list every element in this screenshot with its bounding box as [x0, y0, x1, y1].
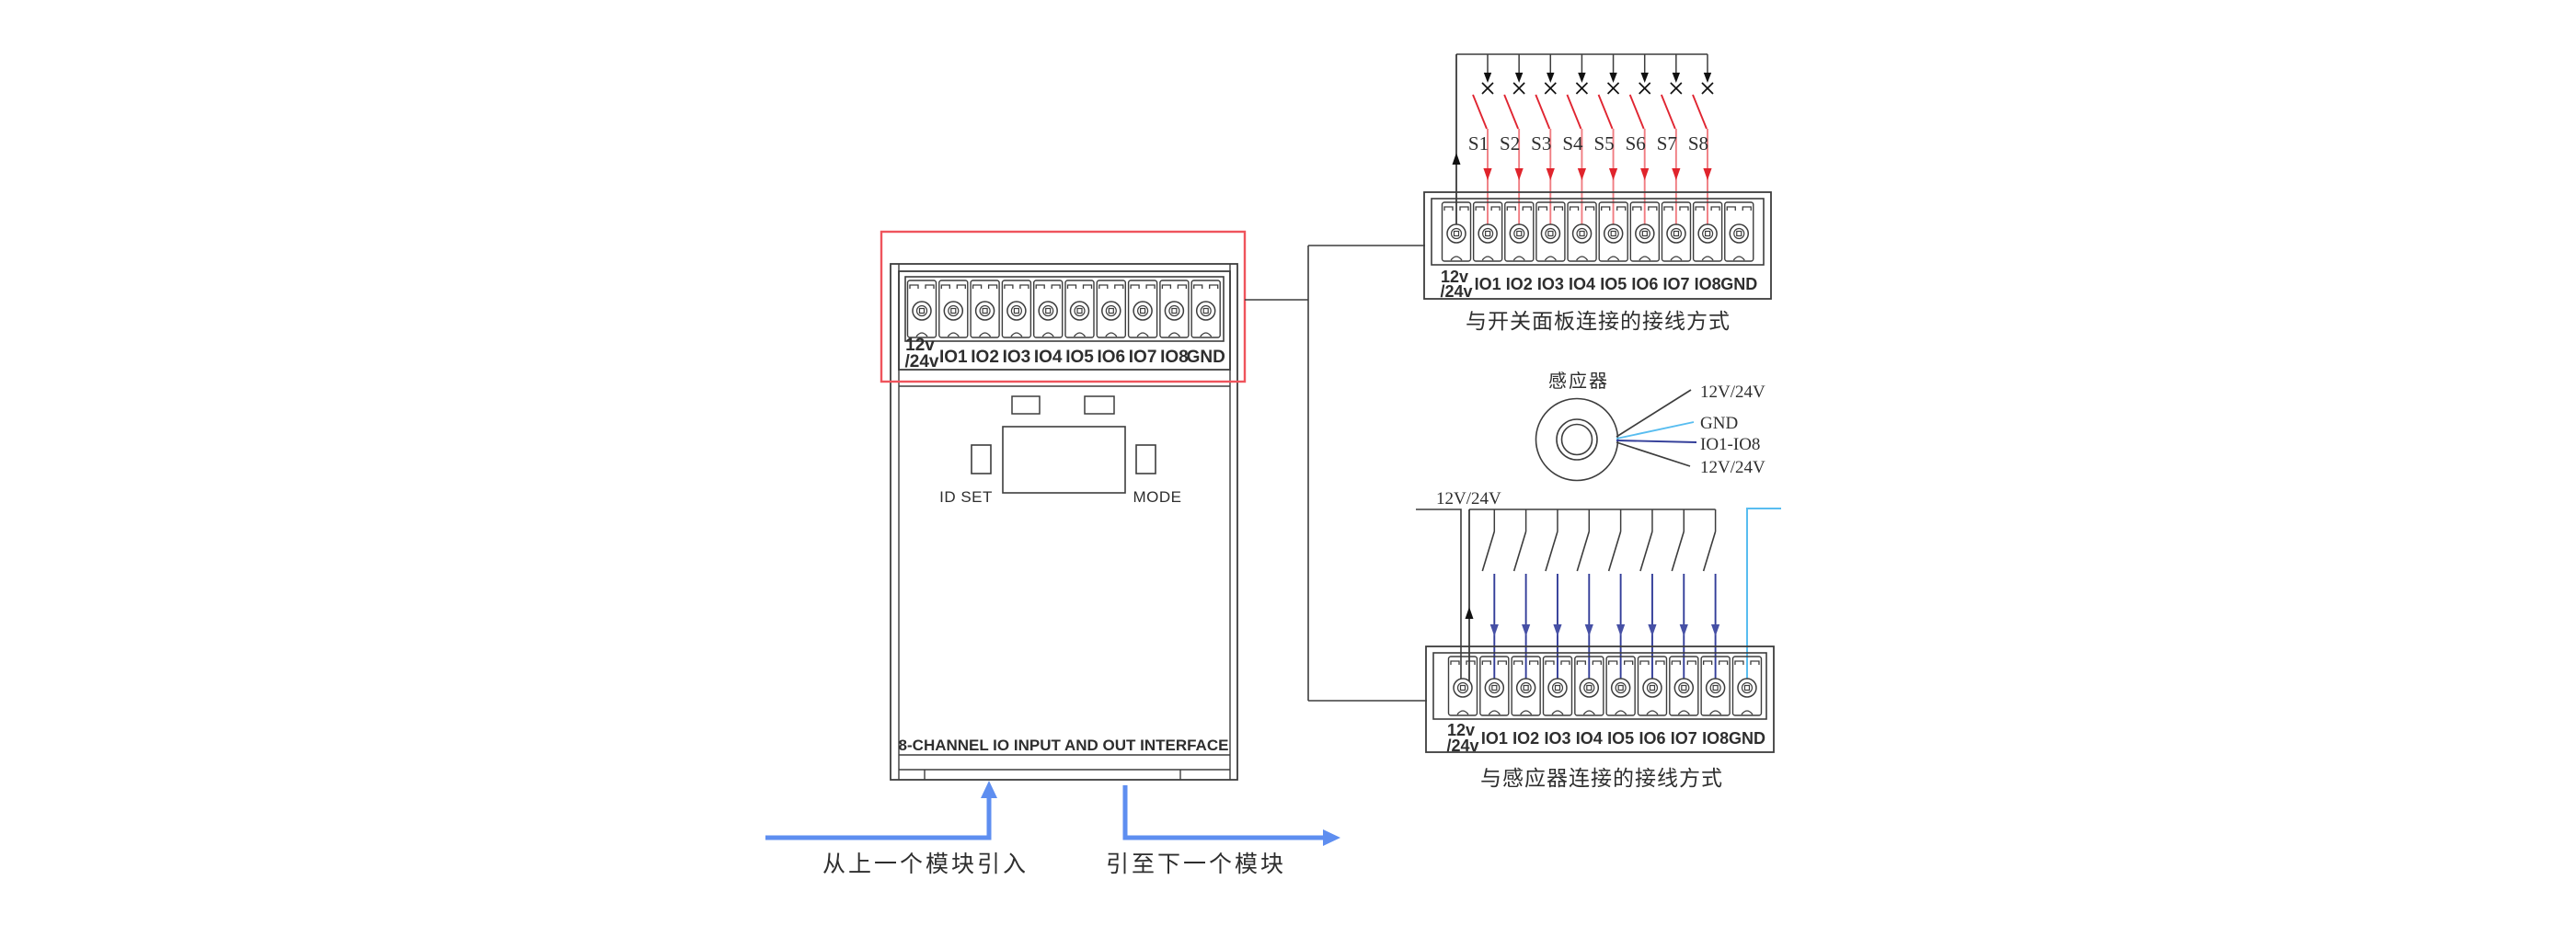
sensor-lens-inner-circle: [1562, 425, 1593, 455]
terminal-screw-outer: [1197, 302, 1215, 320]
switch-lever-line: [1599, 95, 1613, 129]
terminal-label-io: IO5: [1600, 275, 1627, 293]
terminal-label-io: IO2: [1512, 729, 1539, 748]
terminal-screw-outer: [1707, 679, 1725, 697]
switch-wire-arrowhead-icon: [1547, 168, 1555, 180]
terminal-screw-outer: [1730, 224, 1748, 243]
terminal-screw-outer: [976, 302, 995, 320]
switch-channels: S1S2S3S4S5S6S7S8: [1453, 54, 1713, 230]
switch-lever-line: [1630, 95, 1644, 129]
terminal-notch: [1168, 333, 1179, 337]
terminal-clamp-left: [1444, 207, 1453, 211]
terminal-label-io: IO7: [1671, 729, 1697, 748]
terminal-notch: [1647, 711, 1658, 714]
sensor-channel: [1482, 509, 1499, 685]
terminal-screw-outer: [1612, 679, 1630, 697]
indicator-window-right: [1085, 396, 1114, 414]
connection-lines: [1245, 246, 1427, 701]
switch-label: S6: [1626, 132, 1646, 154]
terminal-screw-outer: [1165, 302, 1183, 320]
sensor-channel: [1640, 509, 1657, 685]
sensor-feed-arrowhead-icon: [1466, 607, 1474, 619]
terminal-clamp-right: [926, 285, 934, 289]
incoming-arrowhead-icon: [981, 781, 997, 798]
switch-lever-line: [1504, 95, 1518, 129]
sensor-wiring-caption: 与感应器连接的接线方式: [1480, 767, 1723, 790]
switch-channel: S4: [1562, 54, 1587, 230]
terminal-screw-outer: [1541, 224, 1559, 243]
terminal-label-io: IO5: [1607, 729, 1634, 748]
terminal-clamp-left: [1727, 207, 1735, 211]
terminal-clamp-left: [1131, 285, 1139, 289]
switch-lever-line: [1640, 531, 1652, 571]
terminal-screw-outer: [1039, 302, 1057, 320]
terminal-notch: [1451, 257, 1462, 260]
incoming-flow-line: [765, 793, 989, 838]
terminal-clamp-right: [1554, 207, 1562, 211]
terminal-clamp-right: [1751, 661, 1759, 665]
terminal-label-io: IO2: [1506, 275, 1533, 293]
module-interface-label: 8-CHANNEL IO INPUT AND OUT INTERFACE: [899, 737, 1229, 754]
switch-lever-line: [1546, 531, 1558, 571]
terminal-clamp-right: [1466, 661, 1475, 665]
sensor-lens-outer-circle: [1557, 419, 1597, 460]
terminal-screw-outer: [1102, 302, 1121, 320]
terminal-clamp-right: [1625, 661, 1633, 665]
terminal-label-io: IO2: [971, 348, 999, 367]
terminal-notch: [1577, 257, 1588, 260]
terminal-screw-outer: [1636, 224, 1654, 243]
terminal-clamp-left: [1609, 661, 1617, 665]
sensor-wire-arrowhead-icon: [1616, 624, 1625, 636]
terminal-clamp-right: [1020, 285, 1029, 289]
terminal-cell: [1002, 280, 1030, 337]
terminal-clamp-left: [1672, 661, 1680, 665]
switch-lever-line: [1577, 531, 1589, 571]
terminal-screw-outer: [913, 302, 931, 320]
sensor-diagram: 感应器 12V/24V GND IO1-IO8 12V/24V: [1536, 371, 1766, 481]
terminal-notch: [1552, 711, 1563, 714]
terminal-label-io: IO4: [1576, 729, 1603, 748]
terminal-clamp-right: [1687, 661, 1696, 665]
terminal-notch: [1011, 333, 1022, 337]
terminal-clamp-right: [1084, 285, 1092, 289]
terminal-clamp-left: [1546, 661, 1554, 665]
switch-lever-line: [1567, 95, 1581, 129]
terminal-clamp-left: [1640, 661, 1649, 665]
switch-lever-line: [1704, 531, 1716, 571]
sensor-body-circle: [1536, 399, 1618, 481]
switch-channel: S7: [1657, 54, 1682, 230]
terminal-clamp-right: [1593, 661, 1601, 665]
terminal-label-power-2: /24v: [1446, 737, 1478, 755]
switch-wire-arrowhead-icon: [1640, 168, 1649, 180]
switch-label: S2: [1500, 132, 1520, 154]
terminal-notch: [1733, 257, 1744, 260]
sensor-channels: [1416, 508, 1781, 685]
sensor-wire-arrowhead-icon: [1522, 624, 1530, 636]
switch-label: S8: [1688, 132, 1708, 154]
sensor-wire-arrowhead-icon: [1680, 624, 1688, 636]
sensor-wire-power2: [1616, 442, 1690, 466]
terminal-label-io: IO6: [1631, 275, 1658, 293]
terminal-screw-outer: [1580, 679, 1598, 697]
terminal-clamp-right: [989, 285, 997, 289]
terminal-label-gnd: GND: [1720, 275, 1757, 293]
terminal-label-io: IO1: [1481, 729, 1508, 748]
sensor-wire-label-power1: 12V/24V: [1700, 383, 1765, 402]
switch-label: S4: [1562, 132, 1583, 154]
terminal-label-io: IO8: [1160, 348, 1189, 367]
terminal-clamp-right: [1115, 285, 1123, 289]
terminal-clamp-right: [1719, 661, 1728, 665]
sensor-wire-arrowhead-icon: [1553, 624, 1561, 636]
switch-wire-arrowhead-icon: [1672, 168, 1680, 180]
contact-arrowhead-icon: [1515, 73, 1523, 83]
terminal-notch: [1521, 711, 1532, 714]
terminal-clamp-left: [1068, 285, 1076, 289]
switch-channel: S3: [1531, 54, 1556, 230]
terminal-label-io: IO8: [1695, 275, 1721, 293]
switch-lever-line: [1662, 95, 1675, 129]
terminal-clamp-left: [1633, 207, 1641, 211]
terminal-label-io: IO5: [1065, 348, 1094, 367]
terminal-clamp-right: [1649, 207, 1657, 211]
terminal-clamp-right: [1586, 207, 1594, 211]
outgoing-flow-label: 引至下一个模块: [1106, 851, 1286, 877]
switch-wire-arrowhead-icon: [1703, 168, 1711, 180]
terminal-notch: [1489, 711, 1500, 714]
outgoing-flow-line: [1125, 785, 1325, 838]
terminal-label-io: IO3: [1003, 348, 1031, 367]
terminal-screw-outer: [1447, 224, 1466, 243]
terminal-screw-outer: [1517, 679, 1535, 697]
terminal-screw-outer: [1698, 224, 1717, 243]
sensor-channel: [1514, 509, 1531, 685]
terminal-label-io: IO4: [1034, 348, 1063, 367]
terminal-clamp-left: [1451, 661, 1459, 665]
sensor-supply-line: [1416, 509, 1461, 685]
incoming-flow-label: 从上一个模块引入: [822, 851, 1029, 877]
terminal-notch: [948, 333, 959, 337]
terminal-notch: [1671, 257, 1682, 260]
sensor-supply-label: 12V/24V: [1436, 489, 1501, 508]
sensor-title: 感应器: [1548, 371, 1609, 392]
terminal-cell: [908, 280, 937, 337]
switch-panel-diagram: S1S2S3S4S5S6S7S8 12v/24vIO1IO2IO3IO4IO5I…: [1424, 54, 1771, 333]
terminal-label-gnd: GND: [1729, 729, 1765, 748]
terminal-clamp-right: [1711, 207, 1719, 211]
terminal-screw-outer: [1548, 679, 1567, 697]
terminal-clamp-right: [1498, 661, 1506, 665]
terminal-clamp-left: [1570, 207, 1579, 211]
terminal-clamp-left: [910, 285, 918, 289]
terminal-label-io: IO6: [1639, 729, 1665, 748]
flow-arrows: 从上一个模块引入 引至下一个模块: [765, 781, 1340, 877]
switch-lever-line: [1693, 95, 1707, 129]
terminal-clamp-left: [1664, 207, 1673, 211]
switch-wire-arrowhead-icon: [1483, 168, 1491, 180]
terminal-clamp-right: [1052, 285, 1060, 289]
terminal-label-io: IO7: [1662, 275, 1689, 293]
terminal-notch: [1583, 711, 1594, 714]
terminal-clamp-left: [941, 285, 949, 289]
terminal-notch: [1608, 257, 1619, 260]
switch-wire-arrowhead-icon: [1578, 168, 1586, 180]
sensor-wire-io: [1616, 440, 1696, 442]
terminal-cell: [939, 280, 968, 337]
switch-channel: S6: [1626, 54, 1650, 230]
id-set-button: [972, 445, 991, 474]
sensor-channel: [1609, 509, 1626, 685]
terminal-notch: [1137, 333, 1148, 337]
switch-lever-line: [1609, 531, 1621, 571]
terminal-screw-outer: [1071, 302, 1089, 320]
terminal-label-io: IO3: [1537, 275, 1564, 293]
terminal-clamp-right: [1530, 661, 1538, 665]
sensor-wire-label-power2: 12V/24V: [1700, 458, 1765, 477]
sensor-wire-label-io: IO1-IO8: [1700, 435, 1760, 454]
power-feed-arrowhead-icon: [1453, 153, 1461, 165]
terminal-cell: [1191, 280, 1220, 337]
terminal-notch: [1545, 257, 1556, 260]
terminal-screw-outer: [1454, 679, 1472, 697]
terminal-screw-outer: [1573, 224, 1592, 243]
contact-arrowhead-icon: [1547, 73, 1554, 83]
contact-arrowhead-icon: [1673, 73, 1680, 83]
terminal-screw-outer: [1643, 679, 1662, 697]
module-terminal-strip: 12v/24vIO1IO2IO3IO4IO5IO6IO7IO8GND: [899, 271, 1230, 371]
terminal-notch: [1201, 333, 1212, 337]
terminal-label-io: IO3: [1544, 729, 1570, 748]
switch-label: S1: [1468, 132, 1489, 154]
terminal-clamp-right: [1742, 207, 1751, 211]
sensor-wire-label-gnd: GND: [1700, 414, 1738, 433]
terminal-screw-outer: [1604, 224, 1623, 243]
terminal-notch: [1639, 257, 1650, 260]
terminal-cell: [1097, 280, 1125, 337]
terminal-notch: [1513, 257, 1524, 260]
switch-channel: S8: [1688, 54, 1713, 230]
switch-label: S3: [1531, 132, 1551, 154]
terminal-notch: [1106, 333, 1117, 337]
sensor-channel: [1672, 509, 1688, 685]
sensor-terminal-strip: 12v/24vIO1IO2IO3IO4IO5IO6IO7IO8GND: [1426, 646, 1774, 755]
contact-arrowhead-icon: [1578, 73, 1585, 83]
terminal-clamp-left: [1538, 207, 1547, 211]
terminal-cell: [971, 280, 999, 337]
terminal-label-io: IO4: [1569, 275, 1595, 293]
terminal-cell: [1129, 280, 1157, 337]
switch-wire-arrowhead-icon: [1515, 168, 1524, 180]
terminal-clamp-right: [1460, 207, 1468, 211]
terminal-clamp-left: [1036, 285, 1044, 289]
terminal-notch: [1678, 711, 1689, 714]
indicator-window-left: [1012, 396, 1040, 414]
terminal-clamp-left: [1602, 207, 1610, 211]
terminal-cell: [1065, 280, 1094, 337]
terminal-clamp-right: [1178, 285, 1186, 289]
outgoing-arrowhead-icon: [1323, 829, 1340, 846]
sensor-wiring-diagram: 12V/24V 12v/24vIO1IO2IO3IO4IO5IO6IO7IO8G…: [1416, 489, 1781, 790]
terminal-clamp-left: [1577, 661, 1585, 665]
terminal-screw-outer: [1133, 302, 1152, 320]
switch-label: S5: [1593, 132, 1614, 154]
terminal-clamp-left: [973, 285, 982, 289]
terminal-clamp-right: [1146, 285, 1155, 289]
terminal-label-io: IO1: [1475, 275, 1501, 293]
terminal-clamp-left: [1704, 661, 1712, 665]
terminal-clamp-left: [1005, 285, 1013, 289]
terminal-notch: [1457, 711, 1468, 714]
terminal-clamp-left: [1162, 285, 1170, 289]
terminal-label-io: IO7: [1129, 348, 1157, 367]
terminal-notch: [1042, 333, 1053, 337]
switch-lever-line: [1672, 531, 1684, 571]
terminal-clamp-right: [1656, 661, 1664, 665]
terminal-notch: [1702, 257, 1713, 260]
sensor-wire-arrowhead-icon: [1711, 624, 1719, 636]
terminal-label-power-2: /24v: [1440, 282, 1472, 301]
sensor-channel: [1577, 509, 1593, 685]
sensor-wire-arrowhead-icon: [1490, 624, 1499, 636]
terminal-notch: [1616, 711, 1627, 714]
mode-label: MODE: [1133, 488, 1182, 506]
diagram-page: ID SET MODE 8-CHANNEL IO INPUT AND OUT I…: [0, 0, 2576, 937]
terminal-screw-outer: [944, 302, 962, 320]
contact-arrowhead-icon: [1641, 73, 1649, 83]
terminal-label-io: IO6: [1097, 348, 1125, 367]
contact-arrowhead-icon: [1704, 73, 1711, 83]
switch-wire-arrowhead-icon: [1609, 168, 1617, 180]
terminal-clamp-left: [1514, 661, 1523, 665]
terminal-screw-outer: [1478, 224, 1497, 243]
switch-lever-line: [1482, 531, 1494, 571]
terminal-clamp-left: [1194, 285, 1202, 289]
terminal-label-io: IO1: [939, 348, 968, 367]
terminal-notch: [980, 333, 991, 337]
sensor-channel: [1546, 509, 1562, 685]
terminal-clamp-right: [957, 285, 965, 289]
display-window: [1003, 427, 1125, 493]
terminal-clamp-left: [1099, 285, 1108, 289]
switch-label: S7: [1657, 132, 1677, 154]
terminal-clamp-left: [1735, 661, 1743, 665]
terminal-clamp-right: [1680, 207, 1688, 211]
terminal-clamp-right: [1617, 207, 1626, 211]
terminal-screw-outer: [1485, 679, 1503, 697]
terminal-clamp-left: [1476, 207, 1484, 211]
terminal-label-gnd: GND: [1187, 348, 1225, 367]
terminal-cell: [1160, 280, 1189, 337]
switch-panel-terminal-strip: 12v/24vIO1IO2IO3IO4IO5IO6IO7IO8GND: [1424, 192, 1771, 301]
sensor-wire-arrowhead-icon: [1585, 624, 1593, 636]
terminal-label-io: IO8: [1702, 729, 1729, 748]
terminal-clamp-right: [1210, 285, 1218, 289]
terminal-screw-outer: [1667, 224, 1685, 243]
sensor-channel: [1704, 509, 1720, 685]
terminal-cell: [1725, 202, 1754, 261]
mode-button: [1136, 445, 1156, 474]
terminal-clamp-right: [1523, 207, 1531, 211]
switch-lever-line: [1535, 95, 1549, 129]
terminal-screw-outer: [1674, 679, 1693, 697]
switch-lever-line: [1473, 95, 1487, 129]
terminal-notch: [1742, 711, 1753, 714]
terminal-clamp-left: [1696, 207, 1704, 211]
switch-channel: S1: [1468, 54, 1493, 230]
terminal-clamp-right: [1491, 207, 1500, 211]
switch-lever-line: [1514, 531, 1526, 571]
contact-arrowhead-icon: [1609, 73, 1616, 83]
terminal-screw-outer: [1510, 224, 1528, 243]
switch-channel: S5: [1593, 54, 1618, 230]
terminal-clamp-left: [1507, 207, 1515, 211]
terminal-clamp-left: [1482, 661, 1490, 665]
gnd-wire-line: [1747, 508, 1781, 685]
terminal-notch: [1482, 257, 1493, 260]
terminal-clamp-right: [1561, 661, 1570, 665]
terminal-cell: [1034, 280, 1063, 337]
terminal-notch: [1710, 711, 1721, 714]
wiring-diagram-canvas: ID SET MODE 8-CHANNEL IO INPUT AND OUT I…: [0, 0, 2576, 937]
io-module: ID SET MODE 8-CHANNEL IO INPUT AND OUT I…: [891, 264, 1237, 780]
switch-channel: S2: [1500, 54, 1524, 230]
id-set-label: ID SET: [939, 488, 993, 506]
terminal-notch: [1075, 333, 1086, 337]
terminal-screw-outer: [1007, 302, 1026, 320]
terminal-screw-outer: [1738, 679, 1756, 697]
switch-panel-caption: 与开关面板连接的接线方式: [1466, 310, 1731, 333]
contact-arrowhead-icon: [1484, 73, 1491, 83]
terminal-label-power-2: /24v: [905, 352, 939, 371]
sensor-wire-arrowhead-icon: [1648, 624, 1656, 636]
terminal-cell: [1449, 657, 1478, 715]
